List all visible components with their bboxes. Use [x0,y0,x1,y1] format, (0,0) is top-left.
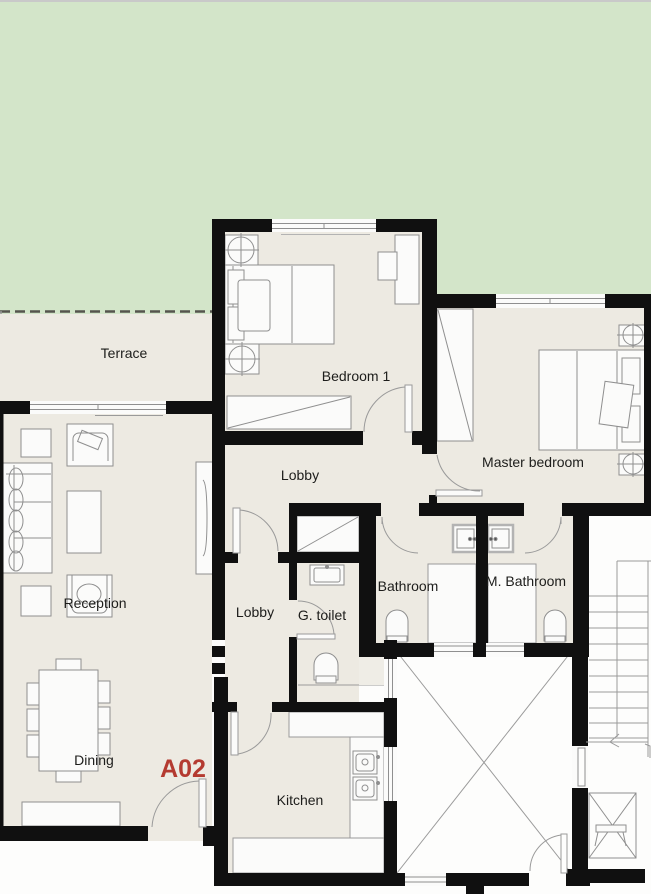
svg-text:Terrace: Terrace [101,345,148,361]
svg-text:G. toilet: G. toilet [298,607,346,623]
svg-text:Lobby: Lobby [236,604,274,620]
svg-text:A02: A02 [160,755,206,783]
svg-text:M. Bathroom: M. Bathroom [486,573,566,589]
svg-text:Kitchen: Kitchen [277,792,324,808]
svg-text:Master bedroom: Master bedroom [482,454,584,470]
svg-text:Bathroom: Bathroom [378,578,439,594]
svg-text:Dining: Dining [74,752,114,768]
svg-text:Reception: Reception [63,595,126,611]
svg-text:Bedroom 1: Bedroom 1 [322,368,391,384]
svg-text:Lobby: Lobby [281,467,319,483]
